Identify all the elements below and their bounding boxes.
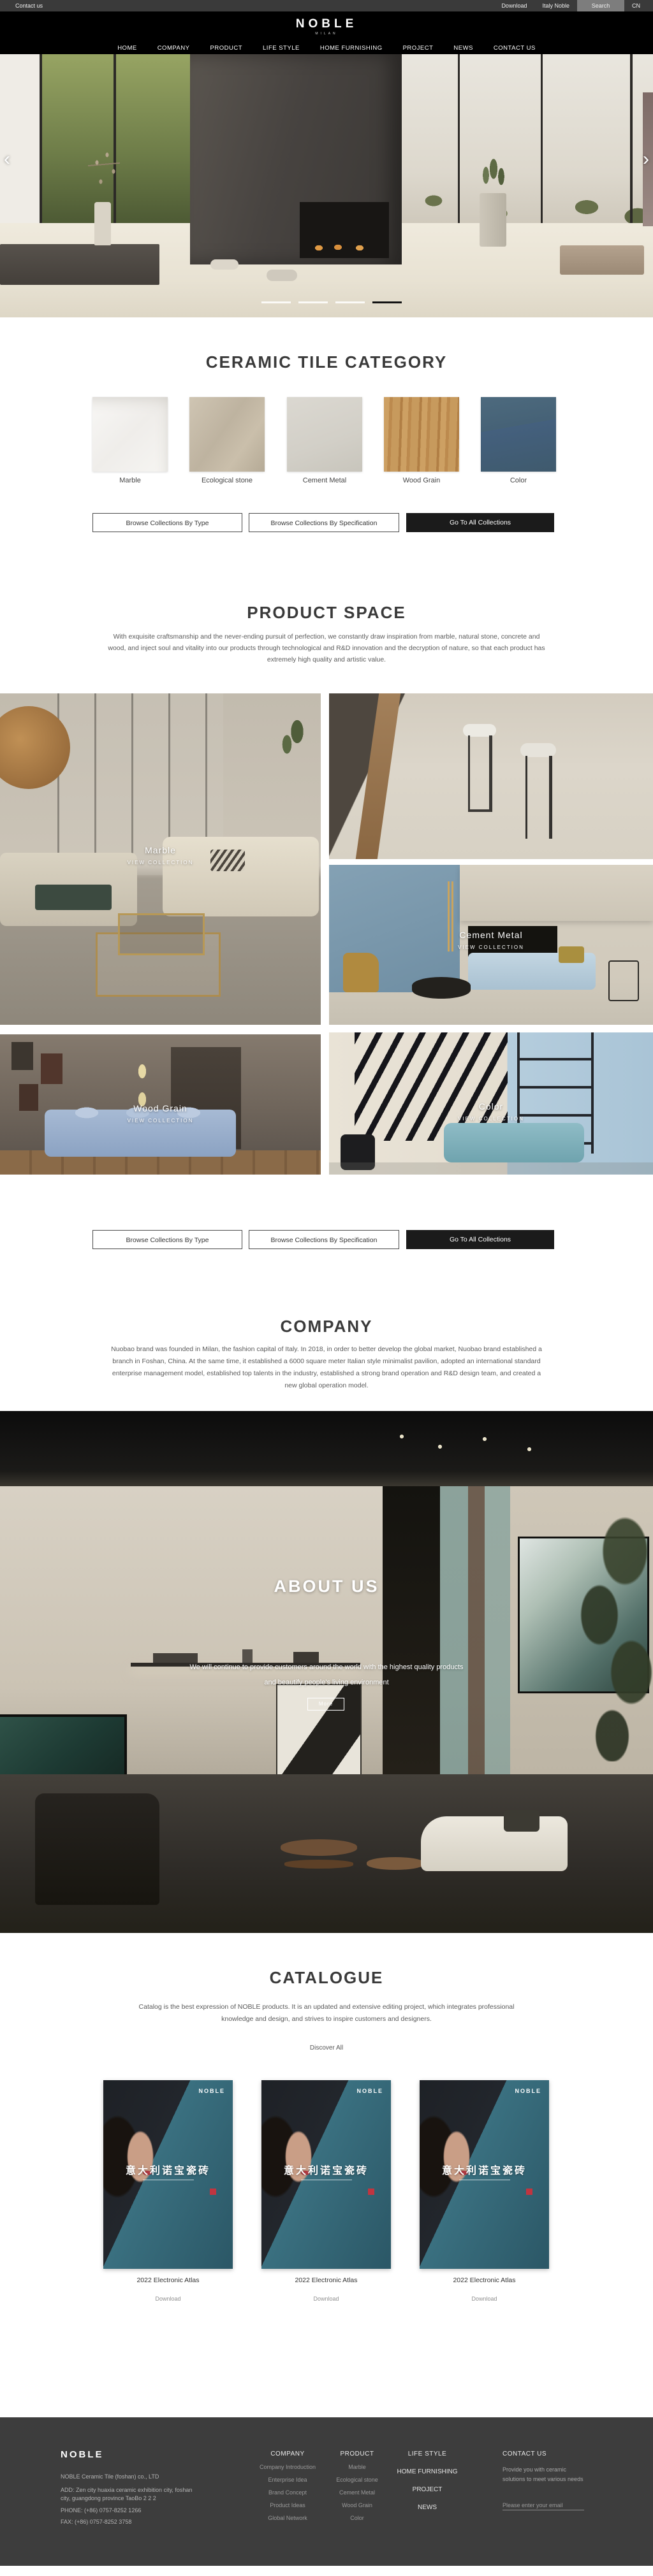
swatch-label-color: Color: [481, 477, 556, 484]
space-cell-cement-metal[interactable]: Cement Metal VIEW COLLECTION: [329, 865, 653, 1025]
card2-title-rule: [301, 2180, 352, 2180]
catalog-card-3[interactable]: NOBLE 意大利诺宝瓷砖: [420, 2080, 549, 2269]
stool-legs-2: [525, 756, 552, 839]
hero-vase: [94, 202, 111, 245]
carousel-prev-icon[interactable]: ‹: [4, 150, 10, 169]
card3-title-rule: [459, 2180, 510, 2180]
space-label-cement-view-collection[interactable]: VIEW COLLECTION: [329, 944, 653, 950]
category-title: CERAMIC TILE CATEGORY: [0, 352, 653, 372]
top-bar: Contact us Download Italy Noble Search C…: [0, 0, 653, 11]
footer-company-name: NOBLE Ceramic Tile (foshan) co., LTD: [61, 2473, 159, 2480]
space-label-marble-name: Marble: [0, 845, 321, 855]
card2-face: [279, 2118, 324, 2201]
about-more-button[interactable]: More: [307, 1698, 344, 1711]
catalog-card-1[interactable]: NOBLE 意大利诺宝瓷砖: [103, 2080, 233, 2269]
carousel-next-icon[interactable]: ›: [643, 150, 649, 169]
all-collections-button-2[interactable]: Go To All Collections: [406, 1230, 554, 1249]
page: Contact us Download Italy Noble Search C…: [0, 0, 653, 2576]
hero-stool-1: [210, 259, 238, 270]
nav-product[interactable]: PRODUCT: [210, 45, 242, 52]
space-label-wood-grain: Wood Grain VIEW COLLECTION: [0, 1103, 321, 1124]
stool-seat-2: [520, 743, 556, 757]
cement-side-table: [608, 960, 639, 1001]
cement-coffee-table: [412, 977, 471, 999]
site-header: NOBLE MILAN HOME COMPANY PRODUCT LIFE ST…: [0, 11, 653, 54]
space-cell-wood-grain[interactable]: Wood Grain VIEW COLLECTION: [0, 1034, 321, 1175]
cement-upper-panel: [460, 865, 653, 921]
browse-by-type-button-2[interactable]: Browse Collections By Type: [92, 1230, 242, 1249]
hero-planter: [480, 193, 506, 247]
carousel-indicator-1[interactable]: [261, 301, 291, 303]
footer-phone: PHONE: (+86) 0757-8252 1266: [61, 2507, 141, 2514]
stool-seat-1: [463, 724, 496, 737]
space-label-color: Color VIEW COLLECTION: [329, 1101, 653, 1122]
nav-contact-us[interactable]: CONTACT US: [494, 45, 536, 52]
contact-us-link[interactable]: Contact us: [0, 0, 50, 11]
browse-by-specification-button[interactable]: Browse Collections By Specification: [249, 513, 399, 532]
footer-project-link[interactable]: PROJECT: [383, 2486, 472, 2493]
color-teal-sofa: [444, 1123, 584, 1162]
nav-home[interactable]: HOME: [117, 45, 137, 52]
marble-room-plant: [274, 700, 319, 776]
space-label-marble-view-collection[interactable]: VIEW COLLECTION: [0, 860, 321, 865]
hero-plant: [473, 143, 514, 197]
marble-room-table-2: [118, 913, 205, 955]
card2-title-cn: 意大利诺宝瓷砖: [261, 2162, 391, 2177]
footer-address-2: city, guangdong province TaoBo 2 2 2: [61, 2495, 156, 2501]
about-coffee-table-2: [367, 1857, 424, 1870]
space-label-wood-name: Wood Grain: [0, 1103, 321, 1113]
company-description: Nuobao brand was founded in Milan, the f…: [110, 1343, 543, 1392]
catalog-download-2[interactable]: Download: [261, 2296, 391, 2302]
card1-title-rule: [143, 2180, 194, 2180]
space-cell-color[interactable]: Color VIEW COLLECTION: [329, 1032, 653, 1175]
about-ceiling-lights: [383, 1424, 574, 1462]
product-space-description: With exquisite craftsmanship and the nev…: [106, 631, 547, 665]
footer-fax: FAX: (+86) 0757-8252 3758: [61, 2519, 131, 2525]
footer-life-style-link[interactable]: LIFE STYLE: [383, 2450, 472, 2457]
about-us-section: ABOUT US We will continue to provide cus…: [0, 1411, 653, 1933]
catalog-name-1: 2022 Electronic Atlas: [103, 2276, 233, 2284]
hero-stool-2: [267, 270, 297, 281]
hero-vase-branches: [88, 150, 120, 205]
card1-brand: NOBLE: [199, 2088, 226, 2094]
browse-by-type-button[interactable]: Browse Collections By Type: [92, 513, 242, 532]
catalog-download-1[interactable]: Download: [103, 2296, 233, 2302]
carousel-indicator-4-active[interactable]: [372, 301, 402, 303]
about-white-sofa: [421, 1816, 568, 1871]
catalog-card-2[interactable]: NOBLE 意大利诺宝瓷砖: [261, 2080, 391, 2269]
marble-room-throw: [35, 885, 112, 910]
about-coffee-table-1: [281, 1839, 357, 1856]
card3-brand: NOBLE: [515, 2088, 542, 2094]
footer-home-furnishing-link[interactable]: HOME FURNISHING: [383, 2468, 472, 2475]
logo[interactable]: NOBLE: [0, 17, 653, 31]
carousel-indicator-2[interactable]: [298, 301, 328, 303]
space-label-marble: Marble VIEW COLLECTION: [0, 845, 321, 865]
catalog-name-2: 2022 Electronic Atlas: [261, 2276, 391, 2284]
about-shelf-objects: [147, 1646, 338, 1663]
about-corridor-tiles: [440, 1486, 510, 1774]
footer-address-1: ADD: Zen city huaxia ceramic exhibition …: [61, 2487, 192, 2493]
italy-noble-link[interactable]: Italy Noble: [534, 0, 577, 11]
main-nav: HOME COMPANY PRODUCT LIFE STYLE HOME FUR…: [0, 45, 653, 52]
swatch-ecological-stone[interactable]: [189, 397, 265, 472]
logo-subtitle: MILAN: [0, 32, 653, 36]
hero-sideboard: [0, 244, 159, 285]
swatch-marble[interactable]: [92, 397, 168, 472]
swatch-cement-metal[interactable]: [287, 397, 362, 472]
card3-face: [437, 2118, 482, 2201]
swatch-label-wood-grain: Wood Grain: [384, 477, 459, 484]
footer-col-nav: LIFE STYLE HOME FURNISHING PROJECT NEWS: [383, 2450, 472, 2511]
about-dark-armchair: [35, 1793, 159, 1905]
color-floor-shadow: [329, 1162, 653, 1175]
all-collections-button[interactable]: Go To All Collections: [406, 513, 554, 532]
card2-seal: [368, 2189, 374, 2195]
swatch-label-marble: Marble: [92, 477, 168, 484]
catalogue-title: CATALOGUE: [0, 1968, 653, 1988]
footer-contact-text: Provide you with ceramic solutions to me…: [503, 2465, 587, 2484]
space-label-cement-metal: Cement Metal VIEW COLLECTION: [329, 930, 653, 950]
about-corridor: [383, 1486, 440, 1774]
swatch-label-ecological-stone: Ecological stone: [189, 477, 265, 484]
about-line1: We will continue to provide customers ar…: [0, 1663, 653, 1671]
email-input[interactable]: [503, 2501, 584, 2510]
language-toggle[interactable]: CN: [624, 0, 653, 11]
search-button[interactable]: Search: [577, 0, 624, 11]
space-cell-marble[interactable]: Marble VIEW COLLECTION: [0, 693, 321, 1025]
about-line2: and beautify people's living environment: [0, 1679, 653, 1686]
nav-project[interactable]: PROJECT: [403, 45, 434, 52]
nav-home-furnishing[interactable]: HOME FURNISHING: [320, 45, 383, 52]
space-label-color-name: Color: [329, 1101, 653, 1111]
space-label-color-view-collection[interactable]: VIEW COLLECTION: [329, 1116, 653, 1122]
catalog-name-3: 2022 Electronic Atlas: [420, 2276, 549, 2284]
card2-brand: NOBLE: [357, 2088, 384, 2094]
hero-bench-right: [560, 245, 644, 275]
product-space-title: PRODUCT SPACE: [0, 603, 653, 623]
swatch-wood-grain[interactable]: [384, 397, 459, 472]
card1-face: [121, 2118, 166, 2201]
hero-fireplace-flames: [307, 243, 381, 252]
swatch-color[interactable]: [481, 397, 556, 472]
space-label-wood-view-collection[interactable]: VIEW COLLECTION: [0, 1118, 321, 1124]
browse-by-specification-button-2[interactable]: Browse Collections By Specification: [249, 1230, 399, 1249]
discover-all-link[interactable]: Discover All: [0, 2044, 653, 2051]
carousel-indicator-3[interactable]: [335, 301, 365, 303]
company-title: COMPANY: [0, 1317, 653, 1336]
footer-news-link[interactable]: NEWS: [383, 2504, 472, 2511]
about-plant: [555, 1462, 653, 1762]
space-cell-stools[interactable]: [329, 693, 653, 859]
stool-legs-1: [468, 735, 492, 812]
download-link[interactable]: Download: [494, 0, 534, 11]
footer-col-contact: CONTACT US Provide you with ceramic solu…: [503, 2450, 587, 2510]
space-label-cement-name: Cement Metal: [329, 930, 653, 940]
card1-seal: [210, 2189, 216, 2195]
about-sofa-cushion: [504, 1810, 539, 1832]
card3-seal: [526, 2189, 532, 2195]
footer: NOBLE NOBLE Ceramic Tile (foshan) co., L…: [0, 2417, 653, 2566]
swatch-label-cement-metal: Cement Metal: [287, 477, 362, 484]
about-title: ABOUT US: [0, 1577, 653, 1596]
catalogue-description: Catalog is the best expression of NOBLE …: [122, 2001, 531, 2025]
nav-company[interactable]: COMPANY: [158, 45, 190, 52]
footer-contact-title: CONTACT US: [503, 2450, 587, 2457]
nav-news[interactable]: NEWS: [453, 45, 473, 52]
card3-title-cn: 意大利诺宝瓷砖: [420, 2162, 549, 2177]
card1-title-cn: 意大利诺宝瓷砖: [103, 2162, 233, 2177]
cement-mustard-chair: [343, 953, 379, 992]
footer-color-link[interactable]: Color: [316, 2515, 399, 2521]
hero-carousel: ‹ ›: [0, 54, 653, 317]
footer-logo: NOBLE: [61, 2449, 104, 2460]
catalog-download-3[interactable]: Download: [420, 2296, 549, 2302]
nav-life-style[interactable]: LIFE STYLE: [263, 45, 300, 52]
